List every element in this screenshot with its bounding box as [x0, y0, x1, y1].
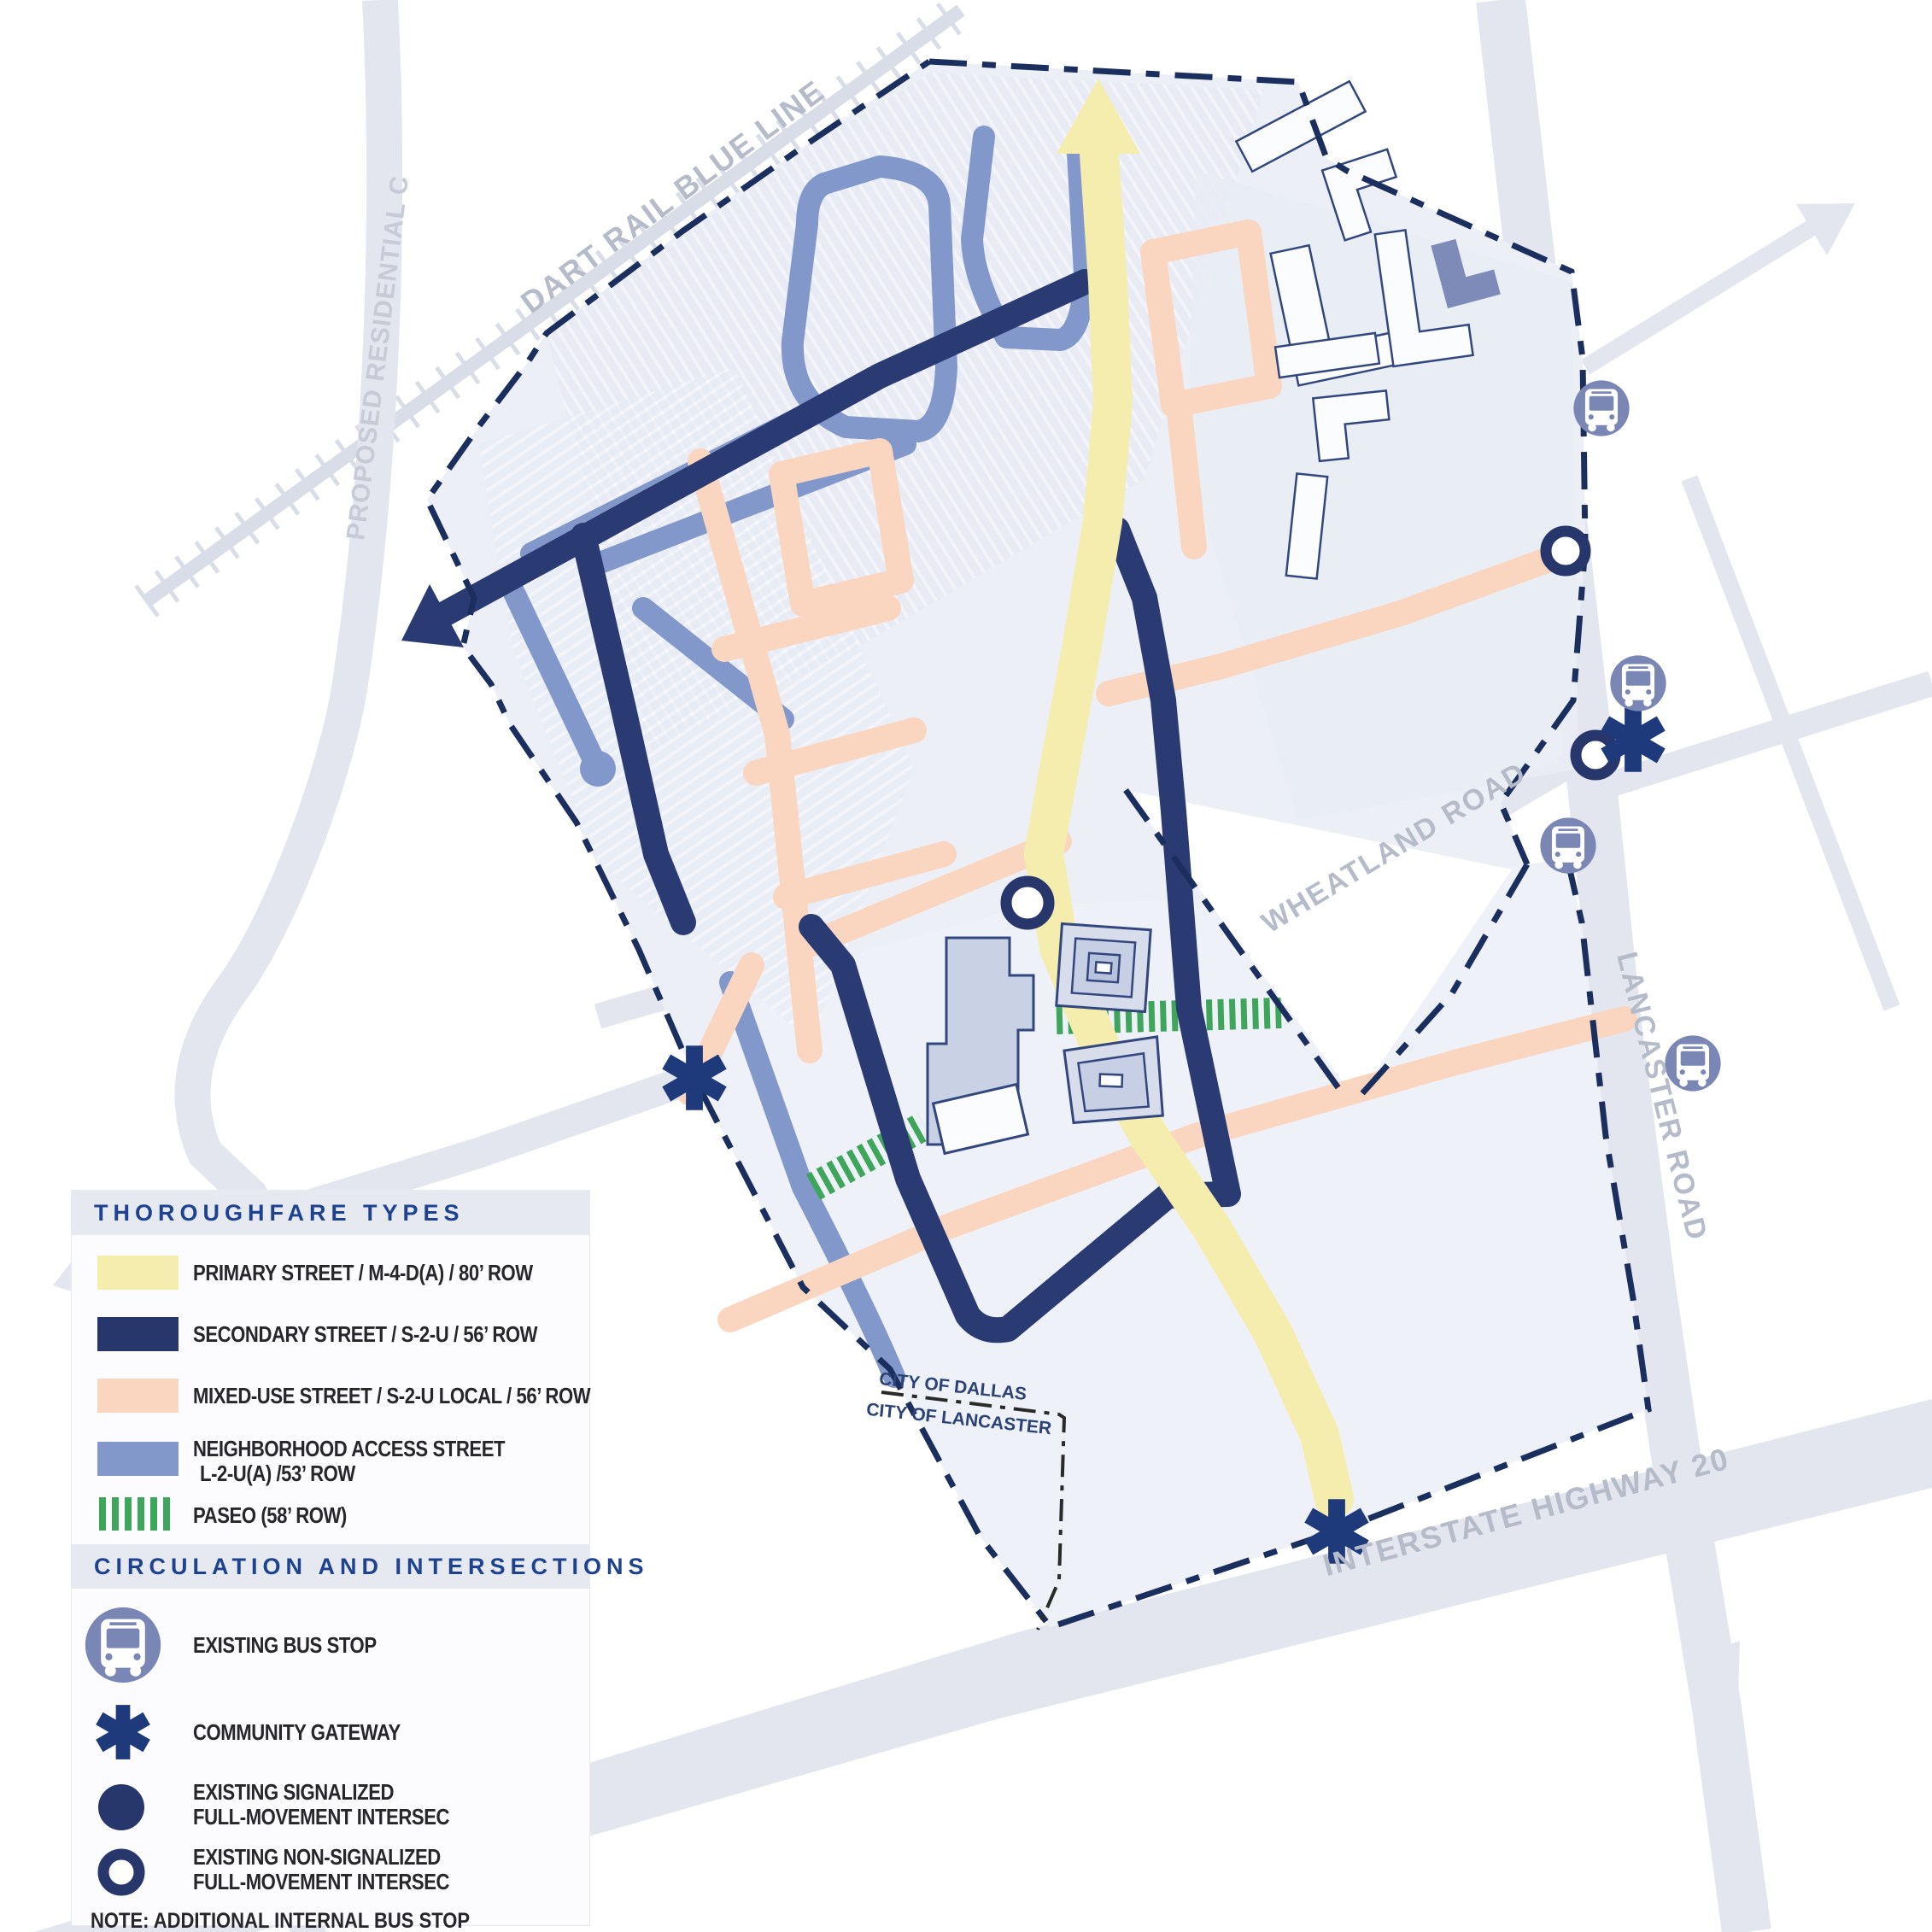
- thoroughfare-types-header: THOROUGHFARE TYPES: [72, 1191, 589, 1235]
- legend-item-label: EXISTING NON-SIGNALIZED: [193, 1845, 441, 1869]
- legend-item-label-line2: FULL-MOVEMENT INTERSEC: [193, 1870, 449, 1894]
- community-gateway-icon: [91, 1700, 155, 1765]
- legend-item-mixed-use-street: MIXED-USE STREET / S-2-U LOCAL / 56’ ROW: [72, 1379, 589, 1416]
- legend-item-secondary-street: SECONDARY STREET / S-2-U / 56’ ROW: [72, 1317, 589, 1355]
- culdesac-bulb: [580, 751, 616, 787]
- legend-item-neighborhood-street: NEIGHBORHOOD ACCESS STREET L-2-U(A) /53’…: [72, 1437, 589, 1491]
- primary-street-swatch: [97, 1256, 179, 1290]
- legend-item-bus-stop: EXISTING BUS STOP: [72, 1606, 589, 1683]
- legend-item-label: MIXED-USE STREET / S-2-U LOCAL / 56’ ROW: [193, 1379, 590, 1413]
- legend-item-non-signalized-intersection: EXISTING NON-SIGNALIZED FULL-MOVEMENT IN…: [72, 1845, 589, 1900]
- signalized-intersection-icon: [96, 1782, 147, 1833]
- civic-building-north: [1057, 923, 1150, 1011]
- bus-stop-icon: [1573, 380, 1629, 436]
- mixed-use-ne-stub: [1179, 405, 1194, 547]
- civic-building-south: [1062, 1033, 1166, 1126]
- legend-item-paseo: PASEO (58’ ROW): [72, 1498, 589, 1536]
- bus-stop-icon: [1540, 817, 1595, 873]
- legend-item-community-gateway: COMMUNITY GATEWAY: [72, 1700, 589, 1761]
- legend-item-label-line2: FULL-MOVEMENT INTERSEC: [193, 1805, 449, 1829]
- non-signalized-intersection-icon: [1006, 881, 1049, 924]
- non-signalized-intersection-icon: [1546, 531, 1585, 571]
- neighborhood-street-swatch: [97, 1442, 179, 1476]
- legend-item-label: PRIMARY STREET / M-4-D(A) / 80’ ROW: [193, 1256, 533, 1290]
- legend-note-line1: NOTE: ADDITIONAL INTERNAL BUS STOP: [91, 1908, 470, 1932]
- legend-item-label: COMMUNITY GATEWAY: [193, 1700, 401, 1765]
- legend-item-label: PASEO (58’ ROW): [193, 1498, 347, 1532]
- legend-item-label-line2: L-2-U(A) /53’ ROW: [200, 1461, 355, 1485]
- paseo-swatch: [94, 1496, 175, 1531]
- bus-stop-icon: [1610, 655, 1666, 711]
- northeast-road: [1585, 218, 1828, 367]
- legend-item-label: SECONDARY STREET / S-2-U / 56’ ROW: [193, 1317, 537, 1351]
- thoroughfare-plan-map: DART RAIL BLUE LINE PROPOSED RESIDENTIAL…: [0, 0, 1932, 1932]
- bus-stop-icon: [84, 1606, 162, 1684]
- legend-item-primary-street: PRIMARY STREET / M-4-D(A) / 80’ ROW: [72, 1256, 589, 1293]
- legend-item-signalized-intersection: EXISTING SIGNALIZED FULL-MOVEMENT INTERS…: [72, 1780, 589, 1835]
- non-signalized-intersection-icon: [96, 1847, 147, 1898]
- legend-item-label: NEIGHBORHOOD ACCESS STREET: [193, 1437, 505, 1461]
- legend-item-label: EXISTING BUS STOP: [193, 1606, 377, 1684]
- circulation-intersections-header: CIRCULATION AND INTERSECTIONS: [72, 1544, 589, 1589]
- legend-panel: THOROUGHFARE TYPES PRIMARY STREET / M-4-…: [71, 1190, 590, 1926]
- secondary-street-swatch: [97, 1317, 179, 1351]
- mixed-use-street-swatch: [97, 1379, 179, 1413]
- legend-item-label: EXISTING SIGNALIZED: [193, 1780, 394, 1804]
